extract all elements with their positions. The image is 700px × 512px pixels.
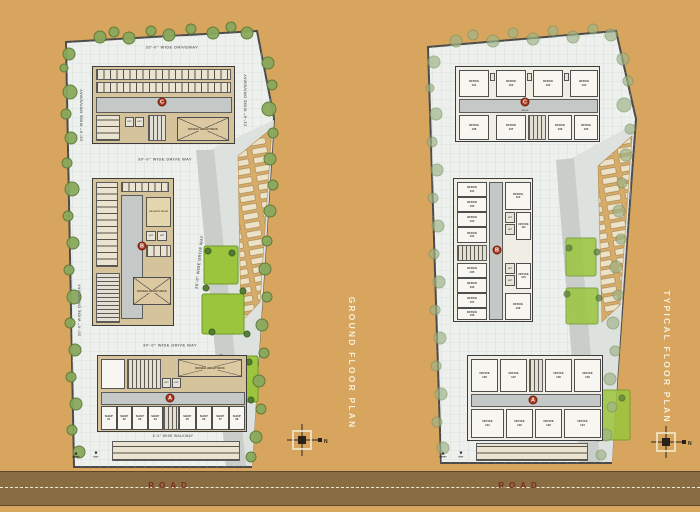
site-plan-canvas: LIFT LIFT DOUBLE HEIGHT DECK SECURITY RO… <box>0 0 700 512</box>
left-plot <box>60 22 278 467</box>
road: ROAD ROAD <box>0 471 700 506</box>
road-center-line <box>0 487 700 488</box>
right-plot <box>426 24 636 463</box>
road-label: ROAD <box>498 481 542 490</box>
road-label: ROAD <box>148 481 192 490</box>
site-decoration <box>0 0 700 512</box>
